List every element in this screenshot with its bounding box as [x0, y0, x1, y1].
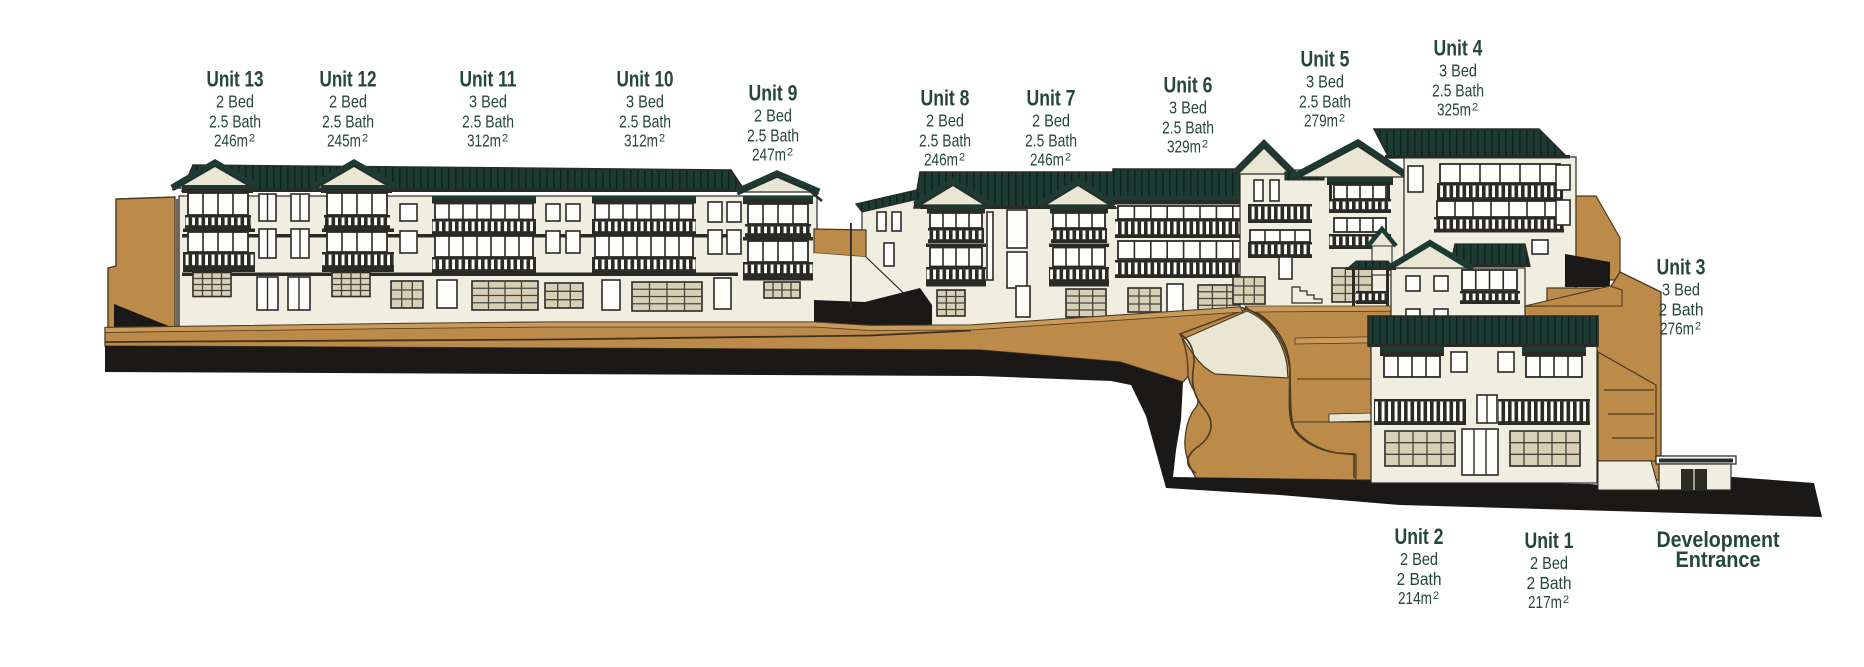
svg-text:2.5 Bath: 2.5 Bath	[209, 111, 261, 131]
svg-text:Unit 8: Unit 8	[921, 86, 970, 111]
svg-text:Unit 3: Unit 3	[1657, 255, 1706, 280]
svg-text:246m: 246m	[1030, 150, 1064, 170]
svg-text:2: 2	[249, 133, 255, 145]
svg-text:2.5 Bath: 2.5 Bath	[919, 131, 971, 151]
svg-text:2 Bed: 2 Bed	[329, 92, 367, 112]
svg-text:Unit 1: Unit 1	[1525, 528, 1574, 553]
svg-text:2: 2	[1339, 113, 1345, 125]
svg-text:Unit 9: Unit 9	[749, 81, 798, 106]
svg-text:2 Bath: 2 Bath	[1659, 299, 1704, 319]
svg-text:2: 2	[502, 133, 508, 145]
svg-text:246m: 246m	[924, 150, 958, 170]
svg-text:Unit 12: Unit 12	[320, 67, 377, 92]
svg-text:2 Bed: 2 Bed	[1530, 553, 1568, 573]
svg-text:245m: 245m	[327, 131, 361, 151]
svg-text:3 Bed: 3 Bed	[626, 92, 664, 112]
svg-text:2 Bath: 2 Bath	[1397, 569, 1442, 589]
svg-text:246m: 246m	[214, 131, 248, 151]
svg-text:2: 2	[1202, 139, 1208, 151]
svg-text:325m: 325m	[1437, 100, 1471, 120]
svg-text:3 Bed: 3 Bed	[1439, 61, 1477, 81]
svg-text:279m: 279m	[1304, 111, 1338, 131]
svg-text:2.5 Bath: 2.5 Bath	[747, 126, 799, 146]
svg-text:2: 2	[959, 152, 965, 164]
svg-text:Unit 6: Unit 6	[1164, 73, 1213, 98]
svg-text:Unit 4: Unit 4	[1434, 36, 1483, 61]
svg-text:247m: 247m	[752, 145, 786, 165]
svg-text:2.5 Bath: 2.5 Bath	[462, 111, 514, 131]
svg-text:Unit 10: Unit 10	[617, 67, 674, 92]
svg-text:2: 2	[1433, 590, 1439, 602]
svg-text:2.5 Bath: 2.5 Bath	[619, 111, 671, 131]
svg-text:2.5 Bath: 2.5 Bath	[1432, 81, 1484, 101]
svg-text:2 Bed: 2 Bed	[1032, 111, 1070, 131]
svg-text:312m: 312m	[624, 131, 658, 151]
svg-text:3 Bed: 3 Bed	[1662, 280, 1700, 300]
svg-text:Unit 13: Unit 13	[207, 67, 264, 92]
svg-text:3 Bed: 3 Bed	[1306, 72, 1344, 92]
svg-text:Unit 11: Unit 11	[460, 67, 517, 92]
svg-text:2: 2	[1472, 102, 1478, 114]
svg-text:3 Bed: 3 Bed	[1169, 98, 1207, 118]
svg-text:2 Bed: 2 Bed	[754, 106, 792, 126]
svg-text:2.5 Bath: 2.5 Bath	[1162, 118, 1214, 138]
svg-text:276m: 276m	[1660, 319, 1694, 339]
svg-text:2 Bath: 2 Bath	[1527, 573, 1572, 593]
svg-text:2: 2	[659, 133, 665, 145]
svg-text:329m: 329m	[1167, 137, 1201, 157]
svg-text:2: 2	[787, 147, 793, 159]
svg-text:2: 2	[1695, 321, 1701, 333]
svg-text:2 Bed: 2 Bed	[926, 111, 964, 131]
svg-text:217m: 217m	[1528, 592, 1562, 612]
svg-text:312m: 312m	[467, 131, 501, 151]
svg-text:2.5 Bath: 2.5 Bath	[1299, 92, 1351, 112]
svg-text:2: 2	[1563, 594, 1569, 606]
svg-text:2: 2	[362, 133, 368, 145]
svg-text:2.5 Bath: 2.5 Bath	[322, 111, 374, 131]
svg-text:214m: 214m	[1398, 588, 1432, 608]
svg-text:Unit 7: Unit 7	[1027, 86, 1076, 111]
svg-text:Unit 2: Unit 2	[1395, 524, 1444, 549]
svg-text:Entrance: Entrance	[1676, 547, 1761, 572]
svg-text:3 Bed: 3 Bed	[469, 92, 507, 112]
svg-text:Unit 5: Unit 5	[1301, 47, 1350, 72]
svg-text:2.5 Bath: 2.5 Bath	[1025, 131, 1077, 151]
svg-text:2 Bed: 2 Bed	[1400, 549, 1438, 569]
svg-text:2 Bed: 2 Bed	[216, 92, 254, 112]
svg-text:2: 2	[1065, 152, 1071, 164]
